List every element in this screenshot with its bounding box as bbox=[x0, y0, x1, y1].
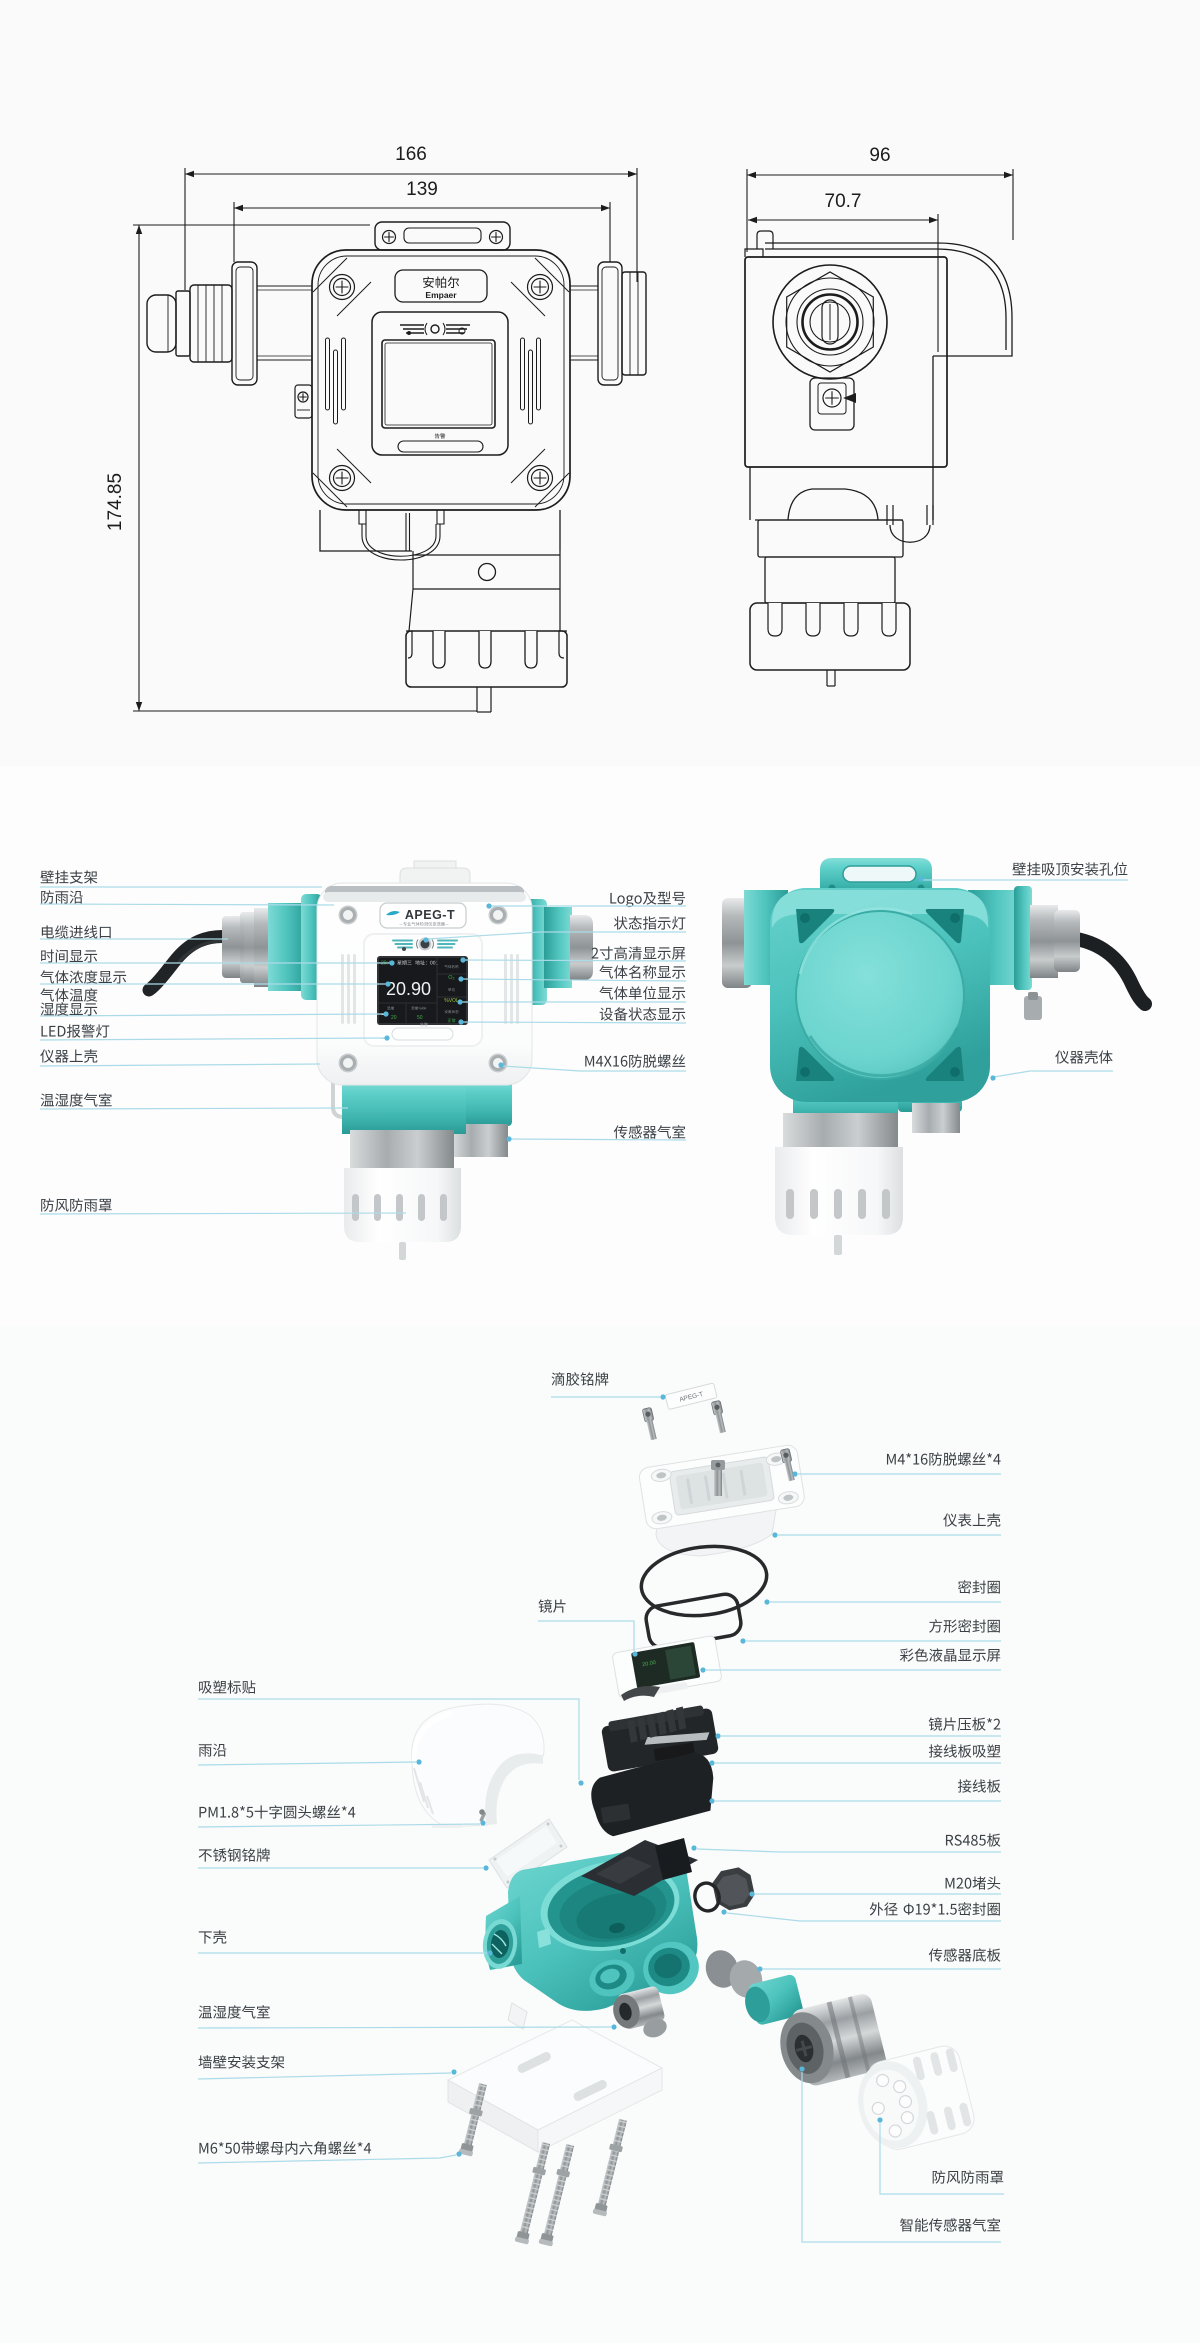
svg-text:70.7: 70.7 bbox=[825, 191, 862, 212]
svg-text:%VOL: %VOL bbox=[444, 998, 459, 1004]
svg-text:139: 139 bbox=[406, 179, 438, 200]
svg-text:20.90: 20.90 bbox=[386, 979, 431, 999]
svg-text:50: 50 bbox=[417, 1015, 423, 1021]
svg-text:APEG-T: APEG-T bbox=[405, 908, 455, 922]
svg-text:166: 166 bbox=[395, 144, 427, 165]
svg-text:Empaer: Empaer bbox=[425, 290, 457, 300]
svg-text:20: 20 bbox=[391, 1015, 397, 1021]
svg-text:O₂: O₂ bbox=[448, 975, 454, 981]
svg-text:96: 96 bbox=[869, 145, 890, 166]
svg-text:174.85: 174.85 bbox=[105, 473, 126, 531]
